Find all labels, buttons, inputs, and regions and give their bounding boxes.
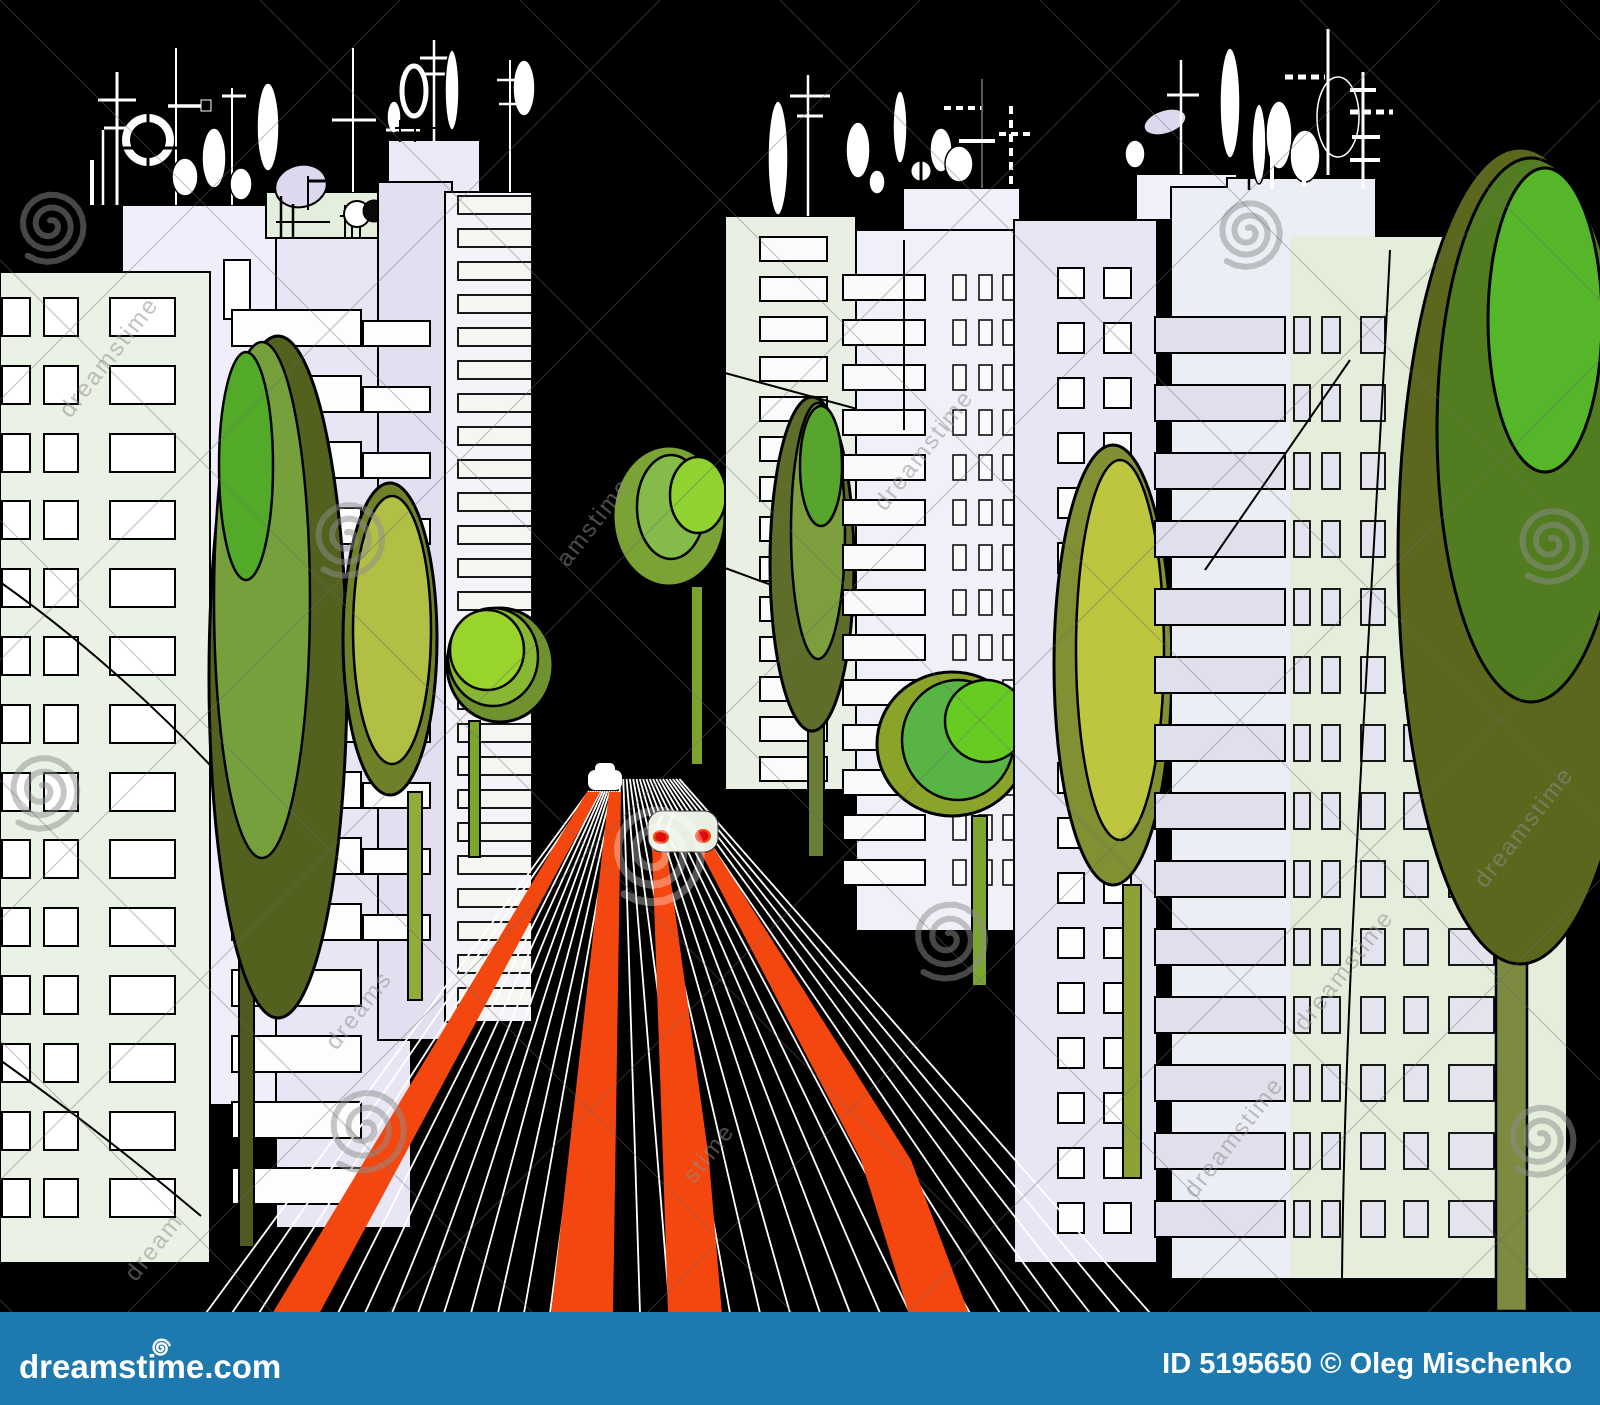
svg-text:dreamstime.com: dreamstime.com — [19, 1348, 281, 1385]
svg-text:ID 5195650 © Oleg Mischenko: ID 5195650 © Oleg Mischenko — [1162, 1348, 1572, 1380]
